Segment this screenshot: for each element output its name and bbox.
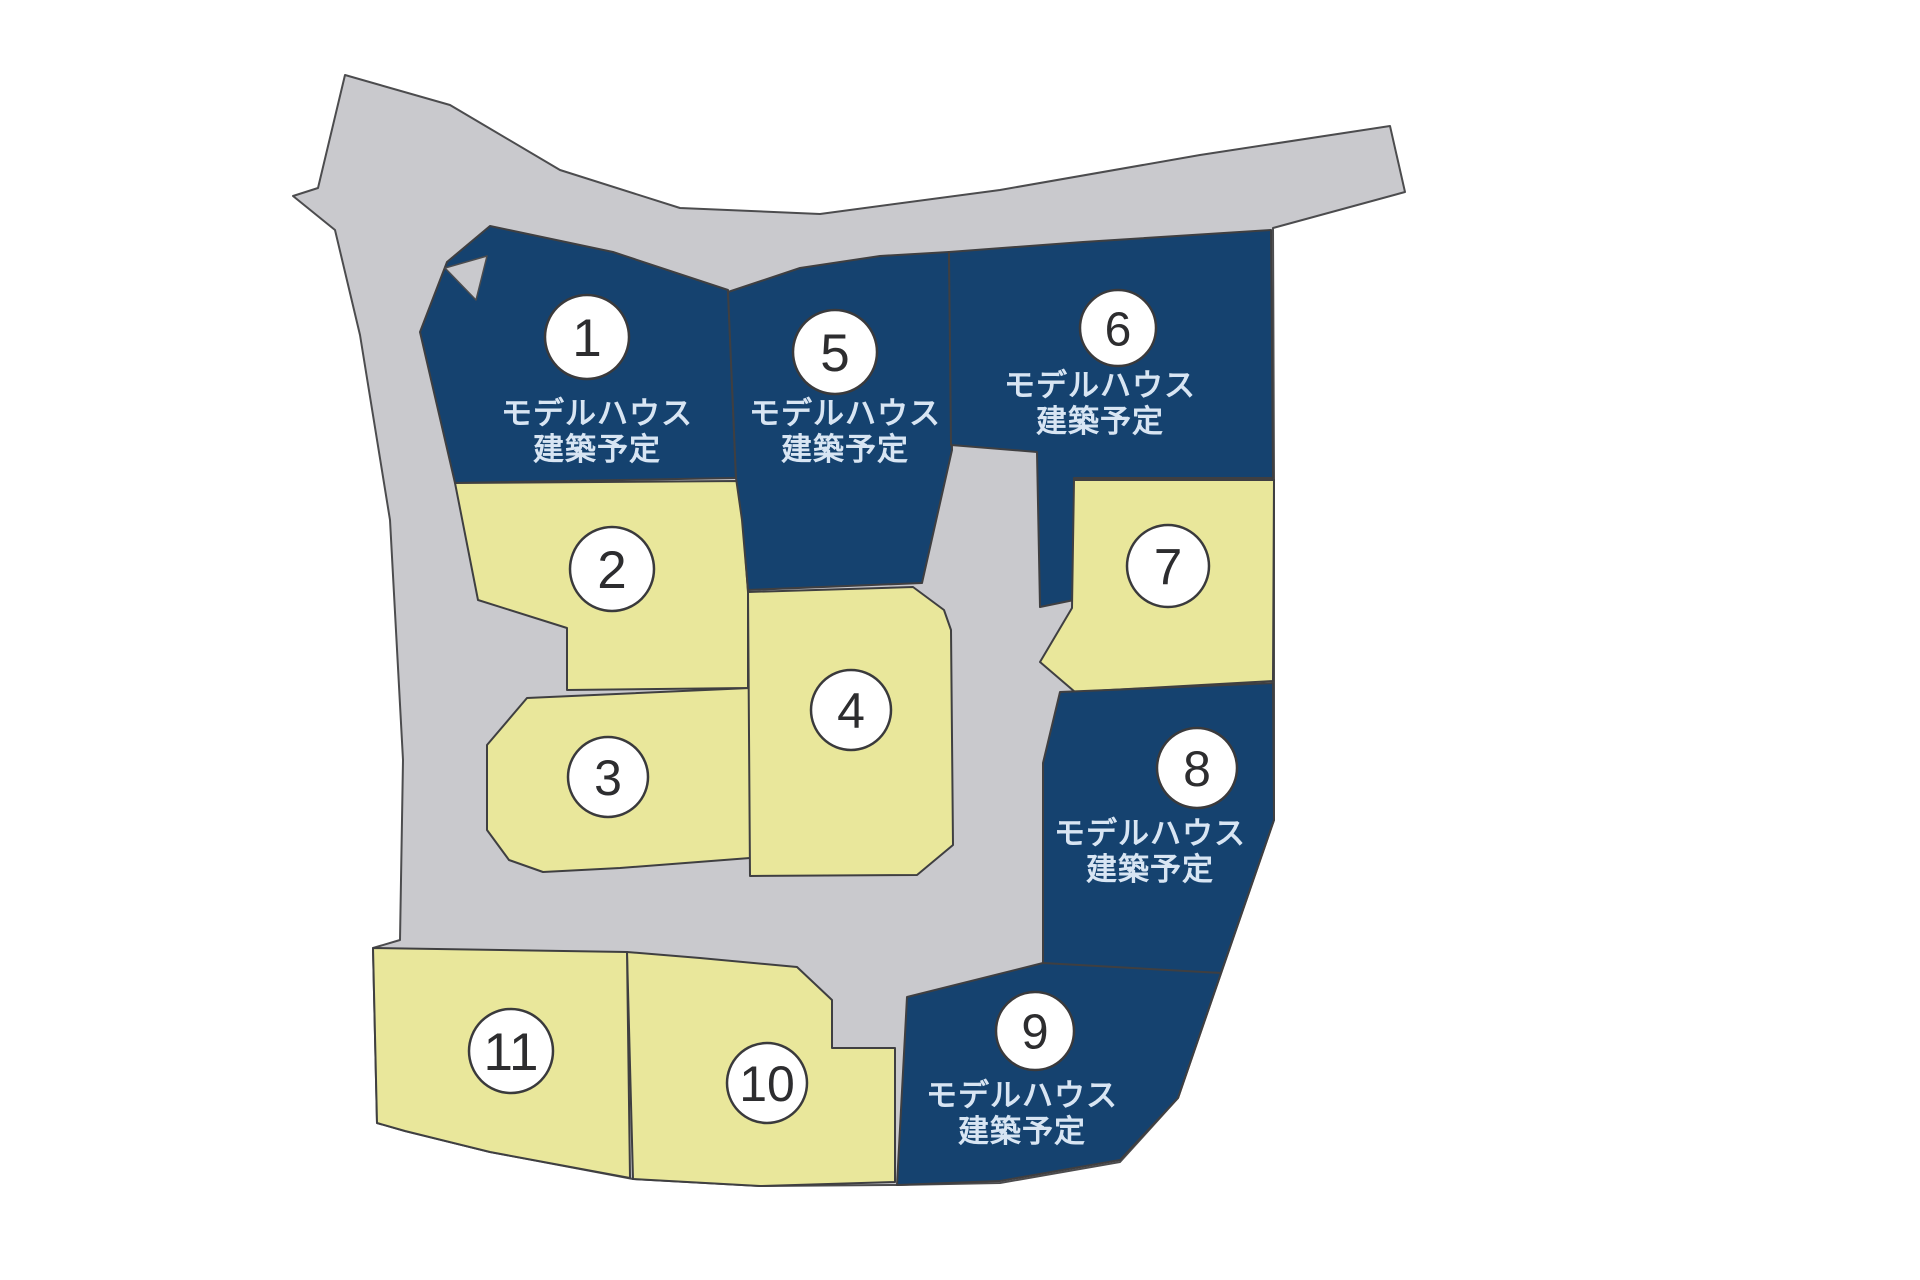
lot-8-label-line2: 建築予定 [1086, 852, 1214, 887]
lot-6-label-line1: モデルハウス [1004, 368, 1196, 403]
lot-8: 8モデルハウス建築予定 [1043, 683, 1274, 973]
lot-7: 7 [1040, 480, 1274, 692]
lot-7-number: 7 [1154, 538, 1182, 595]
lot-9-label-line2: 建築予定 [958, 1114, 1086, 1149]
site-map: 1モデルハウス建築予定2345モデルハウス建築予定6モデルハウス建築予定78モデ… [0, 0, 1920, 1280]
lot-9-area[interactable] [897, 963, 1221, 1185]
lot-4-number: 4 [837, 683, 865, 739]
lot-8-label-line1: モデルハウス [1054, 816, 1246, 851]
lot-3-number: 3 [594, 750, 622, 806]
lot-4: 4 [748, 587, 953, 876]
lot-9-number: 9 [1021, 1006, 1048, 1060]
lot-6-number: 6 [1105, 303, 1132, 356]
site-plan-page: 1モデルハウス建築予定2345モデルハウス建築予定6モデルハウス建築予定78モデ… [0, 0, 1920, 1280]
lot-9-label-line1: モデルハウス [926, 1078, 1118, 1113]
lot-10-number: 10 [739, 1056, 795, 1112]
lot-9: 9モデルハウス建築予定 [897, 963, 1221, 1185]
lot-11-number: 11 [483, 1023, 538, 1082]
lot-5-label-line1: モデルハウス [749, 396, 941, 431]
lot-5-label-line2: 建築予定 [781, 432, 909, 467]
lot-6-label-line2: 建築予定 [1036, 404, 1164, 439]
lot-5-number: 5 [820, 324, 849, 383]
lot-1-label-line2: 建築予定 [533, 432, 661, 467]
lot-3: 3 [487, 688, 750, 872]
lot-11: 11 [373, 948, 630, 1178]
lot-5: 5モデルハウス建築予定 [728, 252, 952, 590]
lot-2-number: 2 [597, 541, 626, 600]
lot-8-number: 8 [1183, 741, 1211, 797]
lot-1-label-line1: モデルハウス [501, 396, 693, 431]
lot-1-number: 1 [572, 309, 601, 368]
